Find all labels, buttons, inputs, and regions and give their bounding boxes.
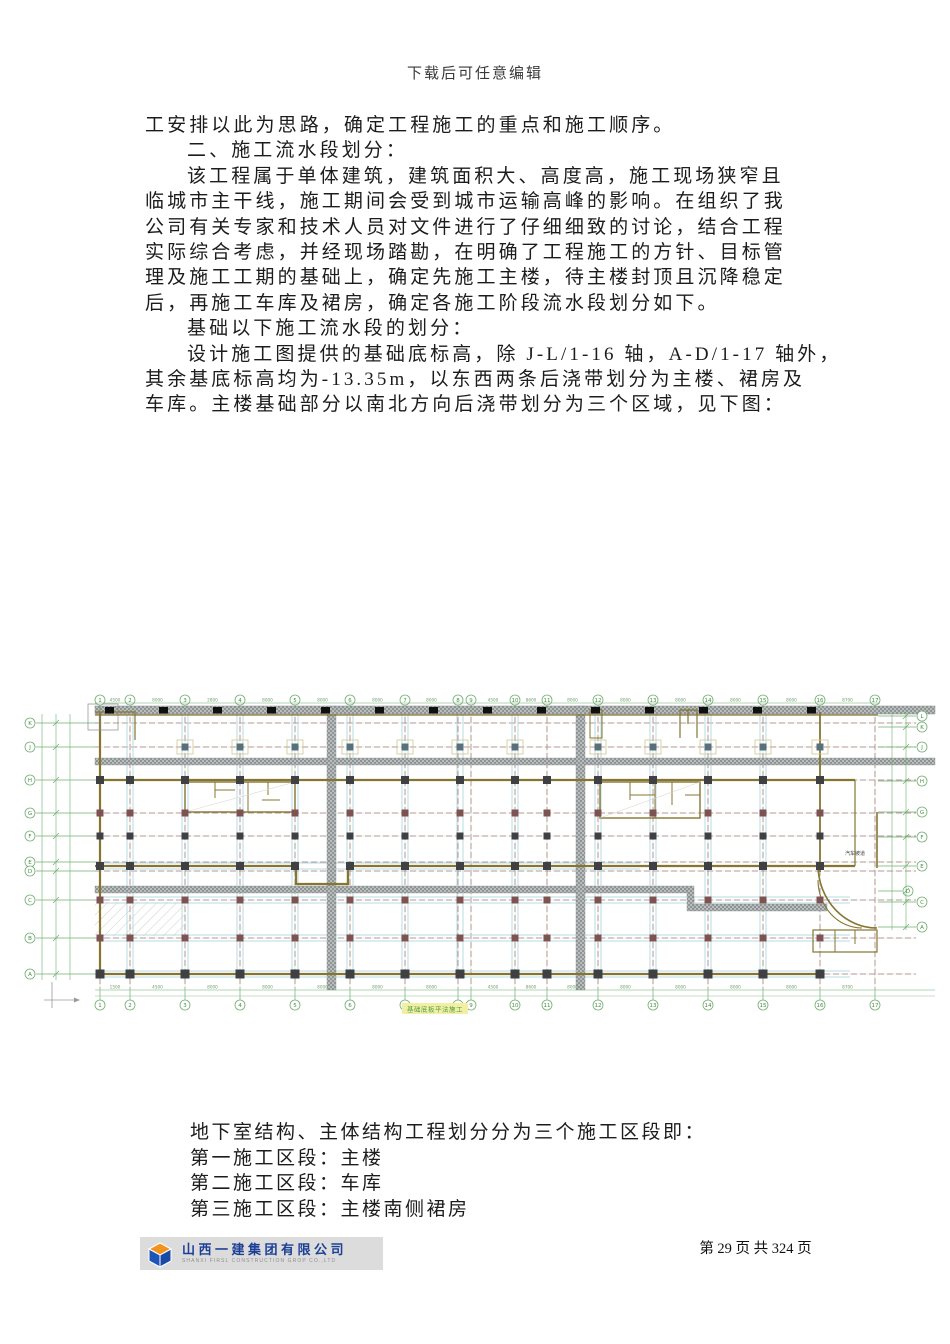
svg-text:9: 9 [469, 1003, 473, 1009]
svg-text:2: 2 [128, 1003, 132, 1009]
svg-text:K: K [920, 725, 924, 731]
svg-text:E: E [28, 860, 32, 866]
svg-text:8700: 8700 [842, 985, 853, 990]
svg-text:G: G [920, 810, 924, 816]
svg-text:1: 1 [98, 1003, 102, 1009]
body-text-block: 工安排以此为思路，确定工程施工的重点和施工顺序。二、施工流水段划分：该工程属于单… [145, 113, 845, 418]
svg-text:J: J [920, 745, 923, 751]
svg-text:8000: 8000 [152, 698, 163, 703]
svg-text:4500: 4500 [488, 698, 499, 703]
svg-text:10: 10 [512, 1003, 519, 1009]
svg-text:8000: 8000 [620, 985, 631, 990]
svg-text:1500: 1500 [110, 985, 121, 990]
svg-text:4500: 4500 [152, 985, 163, 990]
svg-text:5: 5 [293, 1003, 297, 1009]
svg-text:E: E [920, 864, 924, 870]
plan-dimensions: 4500150080004500280080008000800080008000… [42, 698, 935, 996]
body-line: 理及施工工期的基础上，确定先施工主楼，待主楼封顶且沉降稳定 [145, 265, 845, 290]
company-logo-icon [145, 1240, 175, 1268]
svg-text:2800: 2800 [207, 698, 218, 703]
list-line: 第一施工区段：主楼 [190, 1146, 890, 1172]
svg-text:C: C [28, 898, 32, 904]
body-line: 设计施工图提供的基础底标高，除 J-L/1-16 轴，A-D/1-17 轴外， [145, 342, 845, 367]
svg-text:D: D [906, 889, 910, 895]
list-line: 地下室结构、主体结构工程划分分为三个施工区段即： [190, 1120, 890, 1146]
plan-axis-labels: 1122334455667788991010111112121313141415… [25, 695, 927, 1010]
svg-text:17: 17 [872, 1003, 879, 1009]
plan-caption: 基础底板平法施工 [407, 1005, 463, 1014]
body-line: 实际综合考虑，并经现场踏勘，在明确了工程施工的方针、目标管 [145, 240, 845, 265]
svg-text:K: K [28, 721, 32, 727]
svg-text:汽车坡道: 汽车坡道 [845, 850, 865, 857]
construction-section-list: 地下室结构、主体结构工程划分分为三个施工区段即：第一施工区段：主楼第二施工区段：… [190, 1120, 890, 1222]
svg-text:8000: 8000 [567, 698, 578, 703]
body-line: 工安排以此为思路，确定工程施工的重点和施工顺序。 [145, 113, 845, 138]
body-line: 车库。主楼基础部分以南北方向后浇带划分为三个区域，见下图： [145, 392, 845, 417]
svg-text:H: H [28, 778, 32, 784]
list-line: 第三施工区段：主楼南侧裙房 [190, 1197, 890, 1223]
svg-text:8000: 8000 [730, 698, 741, 703]
svg-text:8000: 8000 [675, 698, 686, 703]
svg-text:B: B [28, 936, 32, 942]
svg-text:4: 4 [238, 1003, 242, 1009]
document-page: 下载后可任意编辑 工安排以此为思路，确定工程施工的重点和施工顺序。二、施工流水段… [0, 0, 950, 1344]
svg-text:15: 15 [760, 1003, 767, 1009]
svg-text:8000: 8000 [262, 985, 273, 990]
plan-grid [36, 705, 916, 1000]
plan-cyan-lines [100, 714, 850, 977]
foundation-plan-svg: 1122334455667788991010111112121313141415… [0, 688, 950, 1030]
svg-text:8000: 8000 [786, 698, 797, 703]
svg-text:6: 6 [348, 1003, 352, 1009]
company-name: 山西一建集团有限公司 [182, 1243, 347, 1256]
svg-text:8700: 8700 [842, 698, 853, 703]
svg-text:4500: 4500 [110, 698, 121, 703]
svg-text:F: F [28, 834, 31, 840]
svg-text:8600: 8600 [526, 985, 537, 990]
svg-text:8000: 8000 [730, 985, 741, 990]
svg-text:8000: 8000 [317, 985, 328, 990]
svg-text:12: 12 [595, 1003, 602, 1009]
svg-text:8000: 8000 [372, 698, 383, 703]
svg-text:13: 13 [650, 1003, 657, 1009]
list-line: 第二施工区段：车库 [190, 1171, 890, 1197]
svg-text:4500: 4500 [488, 985, 499, 990]
body-line: 后，再施工车库及裙房，确定各施工阶段流水段划分如下。 [145, 291, 845, 316]
svg-text:8000: 8000 [620, 698, 631, 703]
svg-text:3: 3 [183, 1003, 187, 1009]
company-logo: 山西一建集团有限公司 SHANXI FIRSL CONSTRUCTION GRO… [140, 1237, 383, 1270]
svg-text:D: D [28, 869, 32, 875]
svg-text:A: A [920, 925, 924, 931]
svg-text:16: 16 [817, 1003, 824, 1009]
foundation-plan-figure: 1122334455667788991010111112121313141415… [0, 688, 950, 1030]
page-header-watermark: 下载后可任意编辑 [0, 62, 950, 83]
svg-text:8000: 8000 [426, 698, 437, 703]
svg-text:8000: 8000 [262, 698, 273, 703]
svg-text:11: 11 [544, 1003, 551, 1009]
body-line: 临城市主干线，施工期间会受到城市运输高峰的影响。在组织了我 [145, 189, 845, 214]
svg-text:8000: 8000 [675, 985, 686, 990]
svg-text:A: A [28, 972, 32, 978]
svg-text:8000: 8000 [207, 985, 218, 990]
body-line: 基础以下施工流水段的划分： [145, 316, 845, 341]
body-line: 其余基底标高均为-13.35m，以东西两条后浇带划分为主楼、裙房及 [145, 367, 845, 392]
svg-text:8600: 8600 [526, 698, 537, 703]
svg-text:F: F [920, 835, 923, 841]
body-line: 公司有关专家和技术人员对文件进行了仔细细致的讨论，结合工程 [145, 215, 845, 240]
svg-text:H: H [920, 779, 924, 785]
svg-text:8000: 8000 [567, 985, 578, 990]
svg-text:8000: 8000 [426, 985, 437, 990]
svg-text:C: C [920, 900, 924, 906]
svg-text:J: J [28, 745, 31, 751]
company-name-en: SHANXI FIRSL CONSTRUCTION GROP CO.,LTD [182, 1259, 347, 1264]
svg-text:8000: 8000 [372, 985, 383, 990]
svg-text:G: G [28, 811, 32, 817]
svg-text:14: 14 [705, 1003, 712, 1009]
page-number: 第 29 页 共 324 页 [688, 1237, 823, 1258]
svg-text:8000: 8000 [317, 698, 328, 703]
body-line: 该工程属于单体建筑，建筑面积大、高度高，施工现场狭窄且 [145, 164, 845, 189]
svg-text:8000: 8000 [786, 985, 797, 990]
body-line: 二、施工流水段划分： [145, 138, 845, 163]
